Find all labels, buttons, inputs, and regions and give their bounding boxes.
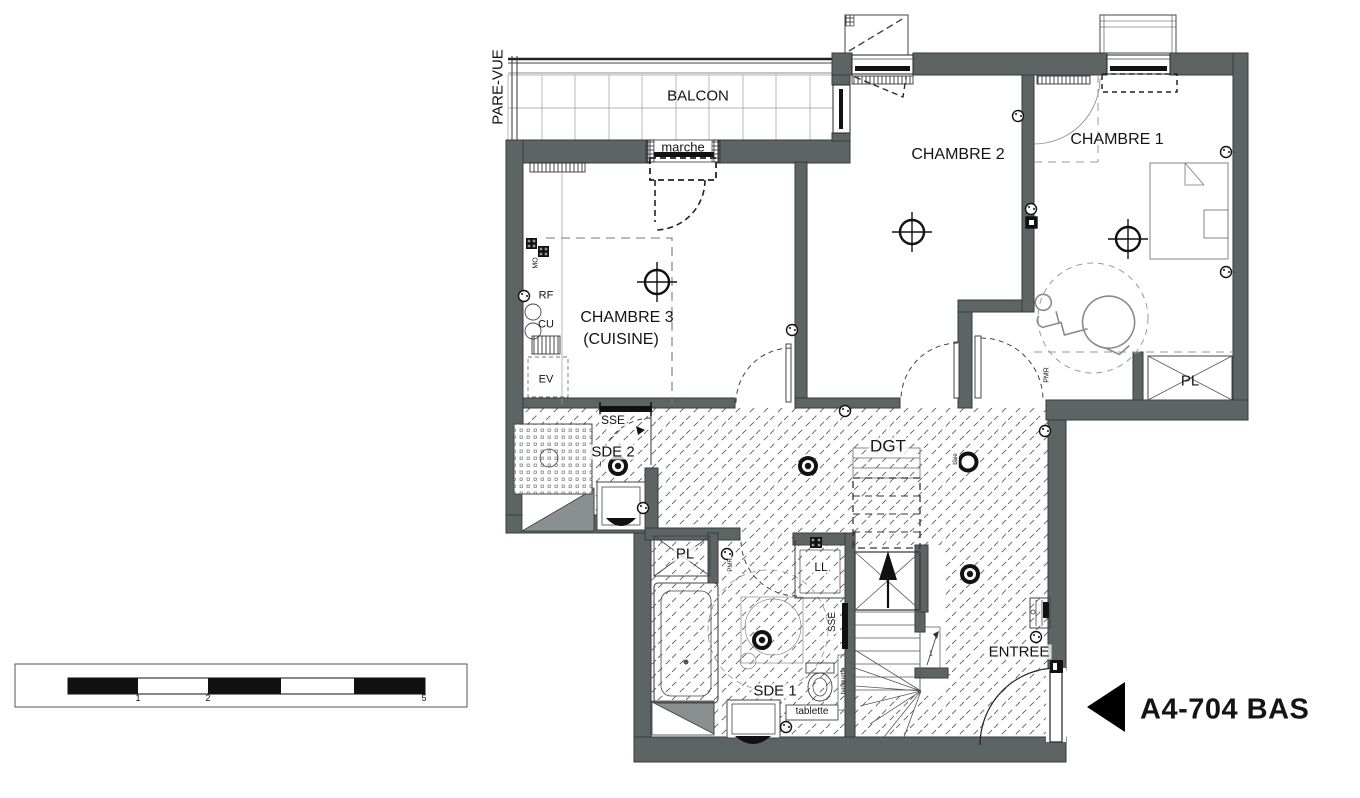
banquette-label: banquette: [841, 668, 847, 695]
ceiling-light-icon: [1108, 219, 1148, 259]
pare-vue-label: PARE-VUE: [491, 49, 506, 125]
spotlight-icon: [752, 630, 772, 650]
spotlight-icon: [798, 456, 818, 476]
ceiling-light-icon: [892, 212, 932, 252]
door-chambre-3: [736, 344, 791, 403]
ceiling-light-icons: [637, 212, 1148, 302]
exterior-screens: [845, 15, 1176, 55]
chambre1-furniture: [1031, 75, 1233, 400]
room-label-sde-1: SDE 1: [751, 684, 798, 699]
room-label-chambre-3: CHAMBRE 3: [580, 310, 673, 326]
door-chambre-1: [975, 336, 1043, 400]
placard-chambre-1-label: PL: [1181, 374, 1199, 389]
socket-icon: [840, 406, 851, 417]
pare-vue-screen: [512, 56, 517, 141]
door-chambre-2: [901, 342, 959, 400]
room-label-dgt: DGT: [868, 438, 908, 455]
baie-label: baie: [953, 451, 959, 466]
socket-icon: [1031, 632, 1042, 643]
ceiling-light-icon: [637, 262, 677, 302]
socket-icon: [781, 722, 792, 733]
room-label-chambre-2: CHAMBRE 2: [911, 147, 1004, 163]
scale-tick-1: 1: [135, 694, 140, 703]
pmr-chambre-1-label: PMR: [1044, 367, 1051, 383]
sse-sde2-label: SSE: [599, 414, 627, 426]
marche-label: marche: [661, 141, 704, 154]
scale-bar: [15, 664, 467, 707]
refrigerateur-label: RF: [539, 291, 554, 302]
socket-icon: [1221, 267, 1232, 278]
socket-icon: [1221, 147, 1232, 158]
socket-icon: [1026, 204, 1037, 215]
micro-onde-label: MO: [533, 257, 540, 268]
window-balcony-side: [833, 85, 850, 133]
room-label-entree: ENTREE: [987, 645, 1052, 660]
socket-icon: [1013, 111, 1024, 122]
socket-icon: [638, 503, 649, 514]
kitchen: [525, 172, 672, 405]
socket-icon: [787, 325, 798, 336]
wheelchair-icon: [1031, 273, 1143, 373]
socket-icon: [1040, 426, 1051, 437]
plan-direction-pointer-icon: [1087, 682, 1125, 732]
socket-icon: [519, 291, 530, 302]
floor-plan-svg: [0, 0, 1360, 798]
window-chambre-1: [1102, 55, 1177, 92]
room-label-chambre-3-cuisine: (CUISINE): [583, 332, 659, 348]
scale-tick-5: 5: [421, 694, 426, 703]
room-label-balcon: BALCON: [667, 89, 729, 104]
pmr-sde-1-label: PMR: [728, 556, 734, 573]
placard-sde-1-label: PL: [674, 547, 696, 562]
lave-linge-label: LL: [812, 561, 829, 573]
ring-icon: [960, 454, 977, 471]
evier-label: EV: [539, 375, 554, 386]
cuisson-label: CU: [538, 320, 554, 331]
sse-stairs-label: SSE: [828, 610, 838, 634]
spotlight-icon: [960, 564, 980, 584]
plan-reference-label: A4-704 BAS: [1140, 696, 1309, 725]
tablette-label: tablette: [794, 707, 831, 717]
room-label-chambre-1: CHAMBRE 1: [1070, 132, 1163, 148]
scale-tick-2: 2: [205, 694, 210, 703]
stair-flight-number-label: 1: [929, 651, 933, 658]
floor-plan-canvas: PARE-VUE BALCON marche CHAMBRE 2 CHAMBRE…: [0, 0, 1360, 798]
room-label-sde-2: SDE 2: [589, 445, 636, 460]
